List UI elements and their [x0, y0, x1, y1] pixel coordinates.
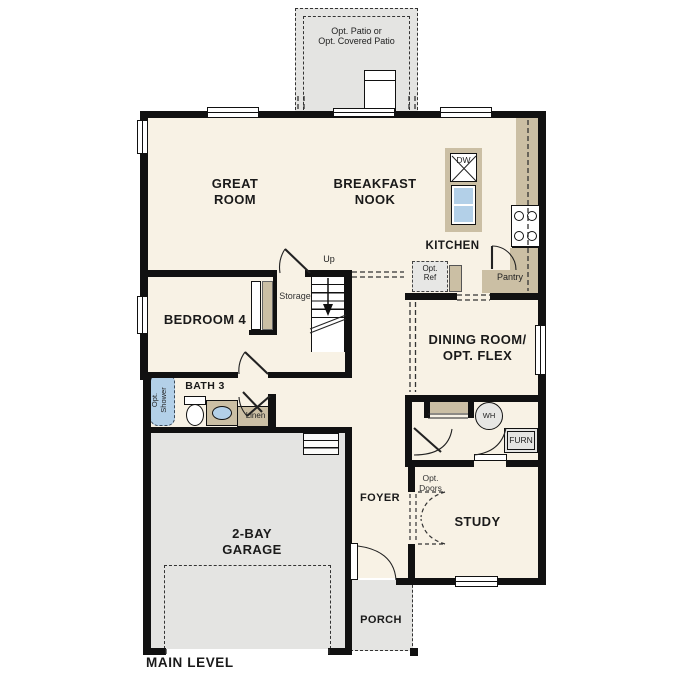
sink-basin	[454, 188, 473, 204]
foyer-label: FOYER	[350, 492, 410, 506]
window-study-bottom	[455, 576, 498, 587]
window-nook-top	[440, 107, 492, 118]
furnace-inner: FURN	[507, 431, 535, 450]
water-heater-label: WH	[483, 412, 496, 421]
burner-icon	[514, 211, 524, 221]
window-greatroom-top	[207, 107, 259, 118]
window-greatroom-left	[137, 120, 148, 154]
opt-doors-label: Opt. Doors	[408, 474, 453, 494]
fireplace-shelf-line	[365, 71, 395, 81]
wall-left-lower	[143, 374, 151, 655]
wall-garage-bottom-b	[328, 648, 352, 655]
dishwasher-label: DW	[450, 156, 477, 166]
sliding-door-patio	[333, 108, 395, 117]
wall-foyer-front-stub	[396, 578, 408, 585]
furnace: FURN	[504, 428, 538, 453]
wall-mech-bottom-b	[506, 460, 546, 467]
vanity-sink	[212, 406, 232, 420]
mech-door-leaf	[474, 454, 507, 461]
window-pane-line	[441, 112, 491, 113]
wall-closet-post-left	[424, 402, 430, 418]
floor-plan: Opt. Patio or Opt. Covered Patio	[0, 0, 687, 687]
wall-central	[345, 270, 352, 372]
window-pane-line	[540, 326, 541, 374]
window-pane-line	[334, 112, 394, 113]
great-room-label: GREAT ROOM	[180, 176, 290, 209]
wall-closet-post-right	[468, 402, 474, 418]
wall-storage-divider	[273, 277, 277, 333]
toilet-bowl	[186, 404, 204, 426]
stove-burners	[512, 206, 539, 246]
kitchen-label: KITCHEN	[405, 239, 500, 253]
staircase	[311, 277, 345, 322]
window-pane-line	[142, 121, 143, 153]
porch-label: PORCH	[348, 614, 414, 628]
bedroom4-label: BEDROOM 4	[145, 312, 265, 328]
window-pane-line	[208, 112, 258, 113]
breakfast-nook-label: BREAKFAST NOOK	[315, 176, 435, 209]
main-level-title: MAIN LEVEL	[146, 655, 306, 672]
opt-ref-label: Opt. Ref	[412, 264, 448, 282]
study-label: STUDY	[440, 514, 515, 530]
linen-label: Linen	[237, 411, 274, 420]
patio-label: Opt. Patio or Opt. Covered Patio	[300, 26, 413, 47]
wall-mech-bottom-a	[408, 460, 474, 467]
front-door-leaf	[350, 543, 358, 580]
wall-bath-garage	[143, 427, 352, 433]
up-label: Up	[318, 254, 340, 264]
burner-icon	[527, 231, 537, 241]
sink-basin	[454, 206, 473, 222]
wall-dining-bottom	[408, 395, 546, 402]
dining-room-label: DINING ROOM/ OPT. FLEX	[415, 332, 540, 365]
kitchen-sink	[451, 185, 476, 225]
opt-shower-label: Opt. Shower	[151, 374, 175, 426]
garage-label: 2-BAY GARAGE	[192, 526, 312, 559]
wall-kitchen-dining-a	[405, 293, 457, 300]
stair-landing	[311, 322, 345, 352]
wall-garage-bottom-a	[143, 648, 166, 655]
storage-label: Storage	[276, 291, 314, 301]
water-heater: WH	[475, 402, 503, 430]
burner-icon	[514, 231, 524, 241]
wall-greatroom-bedroom	[143, 270, 277, 277]
fireplace	[364, 70, 396, 112]
pantry-cabinet-right	[510, 248, 538, 293]
garage-door-jambs	[166, 649, 329, 654]
wall-porch-stub	[410, 648, 418, 656]
pantry-label: Pantry	[484, 272, 536, 282]
ref-side-cabinet	[449, 265, 462, 292]
garage-entry-steps	[303, 433, 339, 455]
garage-door-outline	[164, 565, 331, 649]
burner-icon	[527, 211, 537, 221]
wall-bedroom-bath-b	[268, 372, 352, 378]
window-pane-line	[142, 297, 143, 333]
window-pane-line	[456, 581, 497, 582]
bath3-label: BATH 3	[175, 380, 235, 393]
wall-kitchen-dining-b	[490, 293, 546, 300]
stove	[511, 205, 540, 247]
wall-mech-left	[405, 395, 412, 467]
furnace-label: FURN	[509, 436, 533, 446]
